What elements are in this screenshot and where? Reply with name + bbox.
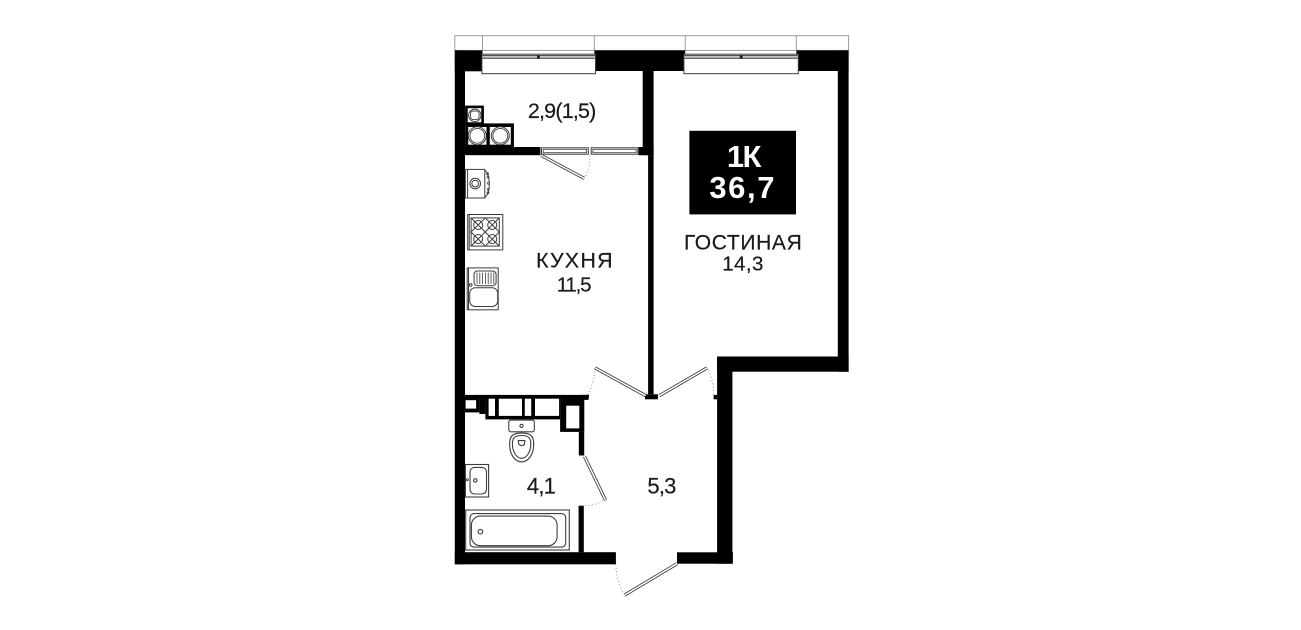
svg-text:36,7: 36,7	[709, 170, 776, 205]
svg-text:14,3: 14,3	[722, 253, 764, 276]
svg-text:5,3: 5,3	[647, 474, 676, 499]
svg-text:4,1: 4,1	[527, 474, 556, 499]
svg-text:11,5: 11,5	[557, 273, 591, 296]
svg-text:1К: 1К	[727, 139, 762, 174]
svg-text:КУХНЯ: КУХНЯ	[536, 248, 614, 272]
svg-text:2,9(1,5): 2,9(1,5)	[528, 99, 596, 123]
svg-text:ГОСТИНАЯ: ГОСТИНАЯ	[684, 232, 802, 255]
